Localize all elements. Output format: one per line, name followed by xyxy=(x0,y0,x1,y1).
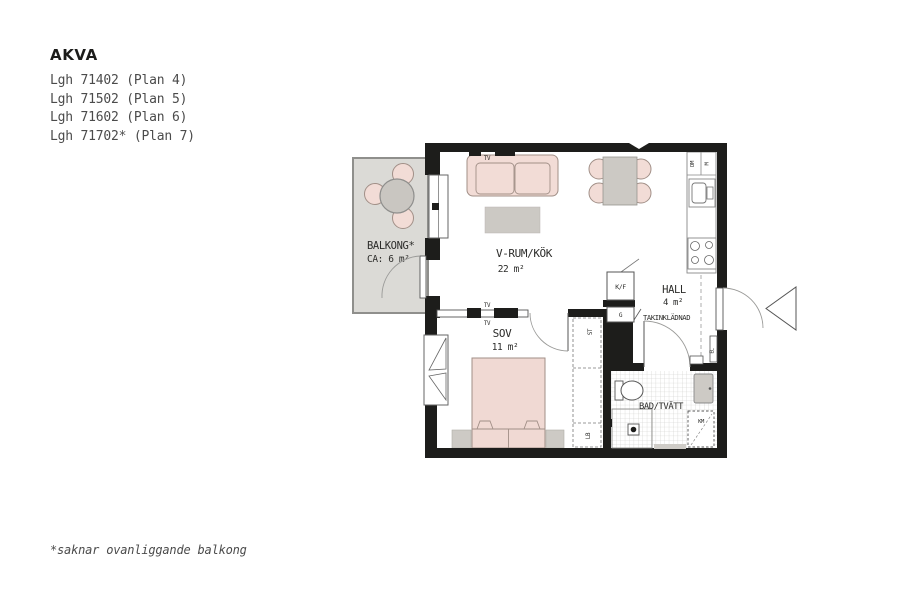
ceiling-cladding-label: TAKINKLÄDNAD xyxy=(643,313,690,322)
nightstand xyxy=(452,430,471,448)
leader-line xyxy=(621,259,639,272)
living-kitchen-area: 22 m² xyxy=(498,264,525,275)
bedroom-furniture xyxy=(452,358,564,448)
tv-outlet-mark xyxy=(467,308,481,318)
wall-left xyxy=(425,238,440,260)
bedroom-area: 11 m² xyxy=(492,342,519,353)
bathroom-label: BAD/TVÄTT xyxy=(639,401,684,412)
sink-faucet xyxy=(709,387,712,390)
closet-outline xyxy=(573,318,601,447)
tv-outlet-label: TV xyxy=(484,321,491,327)
hall-area: 4 m² xyxy=(663,298,683,308)
hall-label: HALL xyxy=(662,284,686,296)
cleaning-cabinet-label: ST xyxy=(588,328,594,335)
window-post xyxy=(432,203,439,210)
bedroom-closet: ST LB xyxy=(573,318,601,447)
dining-table xyxy=(603,157,637,205)
wall-right-lower xyxy=(717,330,727,448)
bathroom-door-arc xyxy=(644,321,690,367)
sofa-cushion xyxy=(515,163,550,194)
bedroom-label: SOV xyxy=(493,327,512,340)
wall-left xyxy=(425,405,437,448)
wall-bottom xyxy=(425,448,727,458)
kitchen-sink-drainer xyxy=(707,187,713,199)
balcony: BALKONG* CA: 6 m² xyxy=(353,158,428,313)
shaft-block xyxy=(603,322,633,367)
kitchen-sink-basin xyxy=(692,183,706,203)
bedroom-door-arc xyxy=(530,313,568,351)
shower-mixer xyxy=(605,419,612,427)
tv-outlet-label: TV xyxy=(484,303,491,309)
balcony-area: CA: 6 m² xyxy=(367,254,410,265)
balcony-label: BALKONG* xyxy=(367,240,414,252)
washing-machine-box xyxy=(688,411,714,447)
floor-drain-dot xyxy=(631,427,637,433)
electrical-panel-label: EL xyxy=(710,348,716,354)
entrance-arrow xyxy=(766,287,796,330)
bedroom-window xyxy=(424,335,448,405)
kitchen: DM M xyxy=(687,152,716,273)
fridge-freezer-label: K/F xyxy=(615,283,626,291)
partition-living-bedroom xyxy=(437,308,528,318)
wall-left xyxy=(425,152,440,175)
toilet-bowl xyxy=(621,381,643,400)
floorplan-drawing: BALKONG* CA: 6 m² xyxy=(0,0,900,600)
sofa-cushion xyxy=(476,163,514,194)
wall-bedroom xyxy=(568,309,603,317)
living-room-furniture xyxy=(467,155,651,233)
nightstand xyxy=(546,430,564,448)
living-kitchen-label: V-RUM/KÖK xyxy=(496,247,553,260)
leader-line xyxy=(634,309,641,320)
rug xyxy=(485,207,540,233)
tv-outlet-mark xyxy=(495,150,515,156)
tv-outlet-mark xyxy=(494,308,518,318)
linen-cabinet-label: LB xyxy=(586,432,592,439)
wall-hall xyxy=(603,300,635,307)
tv-outlet-label: TV xyxy=(484,156,491,162)
wall-bathroom-top xyxy=(611,363,644,371)
hall-small-unit xyxy=(690,356,703,364)
entrance-door-arc xyxy=(723,288,763,328)
wall-left xyxy=(425,318,437,335)
balcony-table xyxy=(380,179,414,213)
bathroom-threshold xyxy=(654,444,686,449)
tv-outlet-mark xyxy=(469,150,481,156)
floorplan-page: AKVA Lgh 71402 (Plan 4) Lgh 71502 (Plan … xyxy=(0,0,900,600)
wall-right-upper xyxy=(717,152,727,288)
balcony-door-leaf xyxy=(420,256,426,298)
entrance-door-leaf xyxy=(716,288,723,330)
